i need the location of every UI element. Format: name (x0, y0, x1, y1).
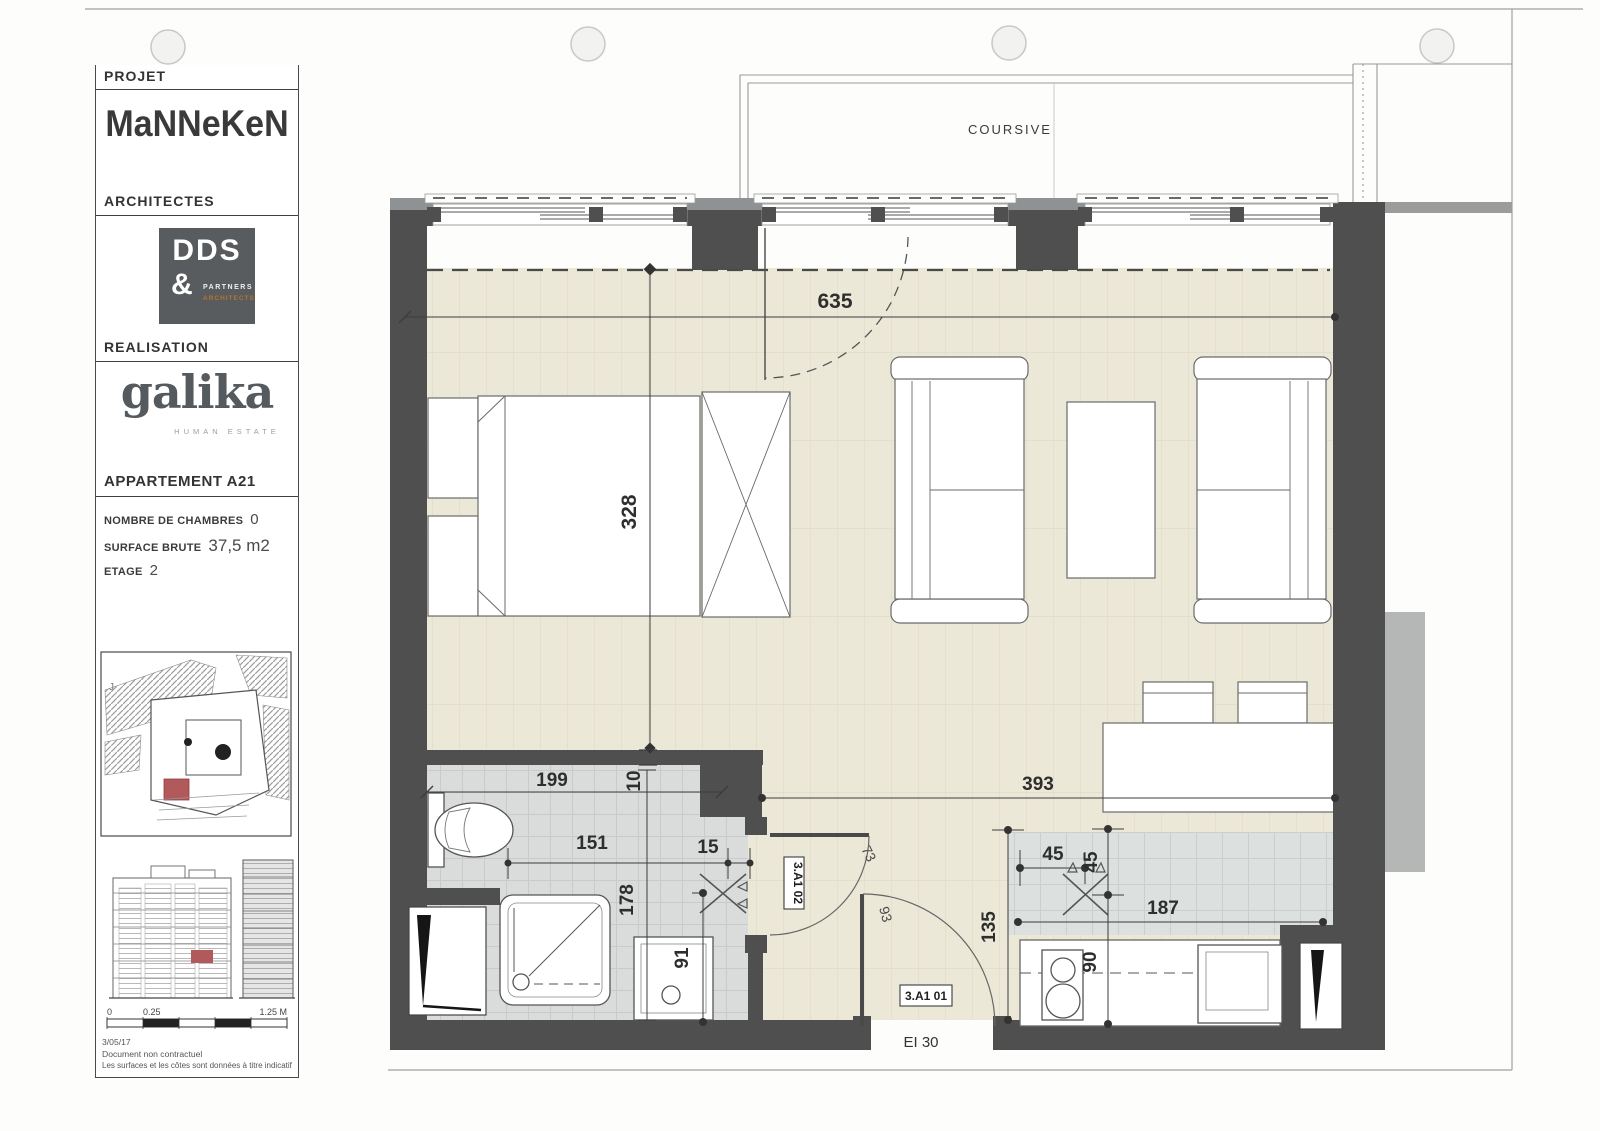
punch-hole (992, 26, 1026, 60)
dds-partners: PARTNERS (203, 284, 253, 291)
apartment-highlight (164, 779, 189, 800)
wardrobe (702, 392, 790, 617)
developer-logo-galika: galika (96, 365, 298, 419)
punch-hole (151, 30, 185, 64)
coursive: COURSIVE (740, 64, 1512, 202)
scale-bar: 0 0.25 1.25 M (99, 1005, 295, 1035)
window-bay (1077, 194, 1338, 225)
apartment-title: APPARTEMENT A21 (96, 473, 306, 490)
field-label: ETAGE (104, 566, 143, 578)
divider (96, 361, 298, 362)
room-code-bathroom: 3.A1 02 (791, 862, 805, 904)
sofa-left (891, 357, 1028, 623)
map-dot (184, 738, 192, 746)
scale-start: 0 (107, 1007, 112, 1017)
dim-label: 45 (1081, 851, 1102, 873)
architect-logo-dds: DDS & PARTNERS ARCHITECTS (159, 228, 255, 324)
appliance (1198, 945, 1282, 1023)
bar-counter (1103, 723, 1335, 812)
coursive-outline (740, 75, 1353, 200)
projet-label: PROJET (96, 68, 306, 84)
realisation-label: REALISATION (96, 339, 306, 355)
door-jamb (745, 935, 767, 953)
bar-stool (1143, 682, 1213, 723)
field-label: SURFACE BRUTE (104, 542, 201, 554)
dim-label: 178 (617, 884, 638, 916)
field-value: 37,5 m2 (208, 536, 269, 555)
armrest (891, 357, 1028, 381)
coursive-inner-line (748, 83, 1353, 200)
nightstand (428, 516, 478, 616)
coffee-table (1067, 402, 1155, 578)
map-dot (215, 744, 231, 760)
field-value: 2 (150, 562, 158, 579)
sofa-body (895, 379, 1024, 599)
room-code-entrance: 3.A1 01 (905, 989, 947, 1003)
elevation-section-main (109, 866, 233, 998)
map-mark: J (109, 682, 114, 693)
divider (96, 215, 298, 216)
nightstand (428, 398, 478, 498)
mattress (478, 396, 700, 616)
shower (500, 895, 610, 1005)
wall-cap (1008, 198, 1085, 210)
galika-tagline: HUMAN ESTATE (96, 427, 328, 436)
project-logo-manneken: MaNNeKeN (96, 103, 298, 145)
elevation-section-side (239, 860, 295, 998)
divider (96, 89, 298, 90)
field-label: NOMBRE DE CHAMBRES (104, 515, 243, 527)
field-value: 0 (250, 511, 258, 528)
punch-hole (571, 27, 605, 61)
armrest (891, 599, 1028, 623)
punch-holes (151, 26, 1454, 64)
disclaimer-line2: Les surfaces et les côtes sont données à… (102, 1061, 292, 1070)
field-etage: ETAGE2 (104, 562, 158, 580)
punch-hole (1420, 29, 1454, 63)
city-block (105, 735, 141, 775)
dds-ampersand: & (171, 268, 193, 302)
bathroom-wall-top (427, 750, 763, 765)
door-jamb (745, 817, 767, 835)
sofa-body (1197, 379, 1326, 599)
dim-label: 45 (1042, 844, 1064, 865)
title-block: PROJET MaNNeKeN ARCHITECTES DDS & PARTNE… (95, 65, 299, 1078)
disclaimer-line1: Document non contractuel (102, 1049, 202, 1059)
divider (96, 496, 298, 497)
courtyard (186, 720, 241, 775)
bathroom-wall-stub (390, 888, 500, 905)
bathroom-wall-step (700, 765, 762, 817)
building-sections (99, 851, 295, 1001)
armrest (1194, 357, 1331, 381)
apartment-highlight (191, 950, 213, 963)
wall-cap (687, 198, 762, 210)
architectes-label: ARCHITECTES (96, 193, 306, 209)
dim-label: 135 (979, 911, 1000, 943)
dim-label: 151 (576, 833, 608, 854)
bathroom-wall-right (748, 953, 763, 1020)
dds-architects: ARCHITECTS (203, 295, 255, 302)
bar-stool (1238, 682, 1307, 723)
door-fire-rating: EI 30 (903, 1034, 938, 1051)
scale-end: 1.25 M (259, 1007, 287, 1017)
dds-name: DDS (159, 234, 255, 268)
wall-pier-ext (692, 226, 758, 270)
dim-label: 393 (1022, 774, 1054, 795)
dim-label: 91 (672, 947, 693, 969)
drawing-date: 3/05/17 (102, 1037, 131, 1047)
windows (425, 194, 1338, 225)
wall-right (1333, 202, 1385, 925)
dim-label: 187 (1147, 898, 1179, 919)
dim-label: 328 (618, 494, 641, 529)
plan-sheet: COURSIVE (0, 0, 1600, 1131)
shaft-niche-left (409, 907, 486, 1015)
scale-mid: 0.25 (143, 1007, 161, 1017)
armrest (1194, 599, 1331, 623)
wall-outer-strip (1385, 612, 1425, 872)
wall-pier-ext (1016, 226, 1078, 270)
window-bay (425, 194, 695, 225)
site-location-map: J (99, 650, 295, 840)
dim-label: 10 (624, 770, 645, 791)
dim-label: 199 (536, 770, 568, 791)
field-surface: SURFACE BRUTE37,5 m2 (104, 536, 270, 556)
sofa-right (1194, 357, 1331, 623)
field-chambres: NOMBRE DE CHAMBRES0 (104, 511, 259, 529)
dim-label: 15 (697, 837, 719, 858)
shaft-niche-right (1300, 943, 1342, 1029)
coursive-label: COURSIVE (968, 122, 1052, 137)
dim-label: 90 (1080, 951, 1101, 972)
dim-label: 635 (817, 290, 852, 313)
coursive-right-edge (1353, 64, 1377, 202)
wall-bottom-left (390, 1020, 857, 1050)
